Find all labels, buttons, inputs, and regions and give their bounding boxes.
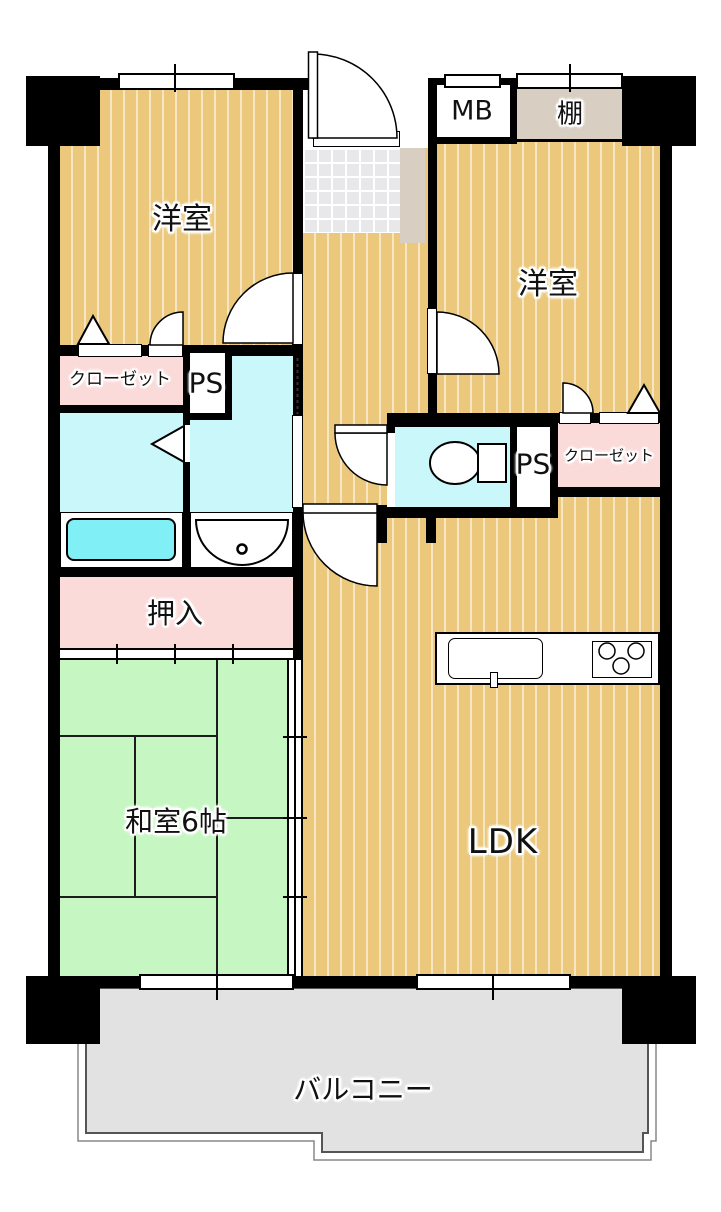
bathroom-area <box>60 413 183 512</box>
closet-left-label: クローゼット <box>69 365 171 390</box>
pipe-space-left-label: PS <box>189 367 224 400</box>
closet-right-door-opening <box>559 412 591 424</box>
bathtub <box>66 518 176 561</box>
wall-above-futon-closet <box>48 568 303 577</box>
wall-left <box>48 78 60 988</box>
fusuma-band-horizontal <box>60 648 293 660</box>
washroom-lower <box>190 420 293 512</box>
toilet-room <box>395 427 510 507</box>
shelf-label: 棚 <box>557 94 583 131</box>
wall-stub-1 <box>377 518 387 543</box>
futon-closet-label: 押入 <box>147 592 203 632</box>
meter-box-label: MB <box>451 96 493 127</box>
wall-stub-2 <box>426 518 436 543</box>
fusuma-tick <box>232 644 234 664</box>
window-bedroom-left <box>118 73 235 90</box>
tatami-line <box>60 896 218 898</box>
kitchen-stove <box>592 641 652 678</box>
washroom-upper <box>232 356 293 420</box>
entry-step <box>400 148 425 243</box>
closet-left-fold-opening <box>78 344 142 357</box>
fusuma-tick <box>116 644 118 664</box>
washroom-sliding-door <box>292 415 303 508</box>
entrance-sill <box>313 131 400 147</box>
kitchen-faucet <box>490 672 498 688</box>
window-tick <box>569 64 571 92</box>
wall-right <box>660 78 672 988</box>
tatami-line <box>60 735 218 737</box>
bedroom-right-door-opening <box>427 308 437 374</box>
fusuma-tick <box>174 644 176 664</box>
toilet-door-slot <box>387 433 395 507</box>
closet-right-label: クローゼット <box>564 445 654 466</box>
window-meter-box <box>444 74 501 88</box>
window-tick <box>216 976 218 1000</box>
balcony-label: バルコニー <box>293 1068 432 1108</box>
fusuma-tick <box>283 896 307 898</box>
window-tick <box>174 64 176 92</box>
bedroom-right-label: 洋室 <box>518 259 578 303</box>
window-tick <box>492 976 494 1000</box>
washbasin-counter <box>190 512 293 568</box>
fusuma-tick <box>283 736 307 738</box>
tatami-line <box>218 817 287 819</box>
pipe-space-right-label: PS <box>516 448 551 481</box>
closet-right-fold-opening <box>599 412 659 424</box>
closet-left-door-opening <box>148 344 183 357</box>
wall-closet-bath <box>48 405 190 413</box>
fusuma-tick <box>283 817 307 819</box>
bedroom-left-door-opening <box>292 273 303 345</box>
entry-tile-floor <box>303 148 400 233</box>
pillar-top-left <box>26 76 100 146</box>
pillar-bottom-right <box>622 976 696 1044</box>
pillar-top-right <box>622 76 696 146</box>
bathroom-door-opening <box>183 425 190 462</box>
pillar-bottom-left <box>26 976 100 1044</box>
bedroom-left-label: 洋室 <box>152 194 212 238</box>
tatami-room-label: 和室6帖 <box>125 800 227 840</box>
ldk-label: LDK <box>468 822 538 862</box>
floor-plan: 洋室 洋室 和室6帖 LDK バルコニー 押入 クローゼット クローゼット PS… <box>0 0 721 1212</box>
